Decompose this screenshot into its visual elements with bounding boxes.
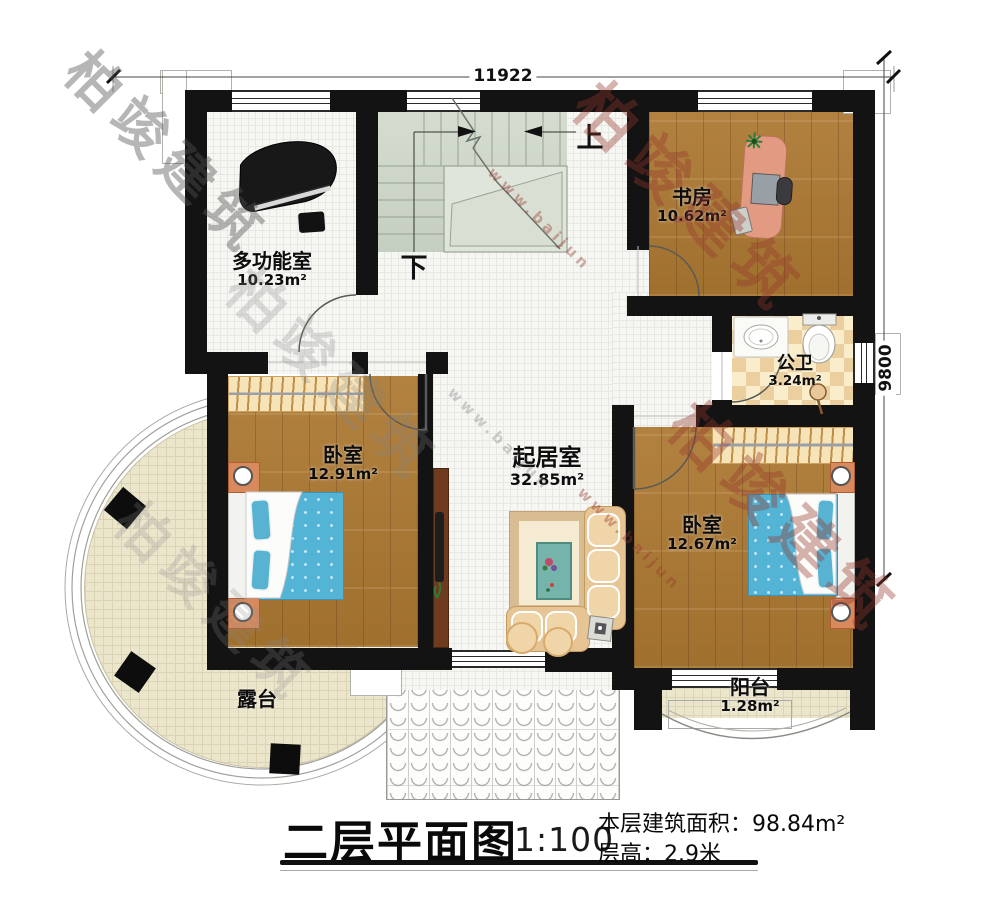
room-name: 公卫 bbox=[768, 354, 821, 374]
room-label-balcony: 阳台 1.28m² bbox=[720, 676, 779, 715]
room-area: 32.85m² bbox=[510, 471, 584, 489]
dimension-height: 9800 bbox=[876, 340, 896, 395]
room-name: 起居室 bbox=[510, 446, 584, 471]
pillow-icon bbox=[251, 549, 272, 590]
room-name: 卧室 bbox=[667, 514, 737, 536]
door-thresholds bbox=[268, 246, 722, 416]
room-name: 卧室 bbox=[308, 444, 378, 466]
room-area: 3.24m² bbox=[768, 374, 821, 389]
room-label-bathroom: 公卫 3.24m² bbox=[768, 354, 821, 389]
room-label-multi: 多功能室 10.23m² bbox=[232, 250, 312, 289]
room-area: 10.62m² bbox=[657, 208, 727, 225]
plan-info: 本层建筑面积：98.84m² 层高：2.9米 bbox=[598, 810, 845, 870]
nightstand-knobs bbox=[234, 467, 850, 621]
bed-right-linen bbox=[786, 494, 836, 594]
room-label-study: 书房 10.62m² bbox=[657, 186, 727, 225]
dimension-width: 11922 bbox=[469, 66, 536, 86]
cabinet-plant-icon bbox=[435, 582, 440, 598]
room-label-terrace: 露台 bbox=[237, 688, 277, 710]
pillow-icon bbox=[251, 499, 272, 540]
room-area: 12.91m² bbox=[308, 466, 378, 483]
stairs-up-label: 上 bbox=[577, 116, 604, 155]
end-table-icon bbox=[588, 616, 614, 642]
room-label-bedroom-right: 卧室 12.67m² bbox=[667, 514, 737, 553]
room-name: 多功能室 bbox=[232, 250, 312, 272]
sink-icon bbox=[734, 317, 788, 357]
plan-linework bbox=[0, 0, 1000, 914]
room-name: 书房 bbox=[657, 186, 727, 208]
room-label-living: 起居室 32.85m² bbox=[510, 446, 584, 489]
plan-height-line: 层高：2.9米 bbox=[598, 840, 845, 870]
pillow-icon bbox=[816, 499, 835, 540]
desk-icon bbox=[728, 131, 795, 240]
room-name: 阳台 bbox=[720, 676, 779, 698]
room-area: 1.28m² bbox=[720, 698, 779, 715]
stairs-down-label: 下 bbox=[401, 246, 428, 285]
room-area: 12.67m² bbox=[667, 536, 737, 553]
table-flowers bbox=[543, 558, 558, 592]
bed-left-linen bbox=[246, 492, 302, 598]
title-underline-thin bbox=[280, 870, 758, 871]
monitor-icon bbox=[751, 173, 780, 205]
floor-plan-canvas: 多功能室 10.23m² 书房 10.62m² 公卫 3.24m² 卧室 12.… bbox=[0, 0, 1000, 914]
piano-icon bbox=[236, 139, 341, 237]
desk-chair-icon bbox=[776, 177, 793, 205]
room-area: 10.23m² bbox=[232, 272, 312, 289]
plan-area-line: 本层建筑面积：98.84m² bbox=[598, 810, 845, 840]
pillow-icon bbox=[816, 547, 835, 588]
room-name: 露台 bbox=[237, 688, 277, 710]
room-label-bedroom-left: 卧室 12.91m² bbox=[308, 444, 378, 483]
